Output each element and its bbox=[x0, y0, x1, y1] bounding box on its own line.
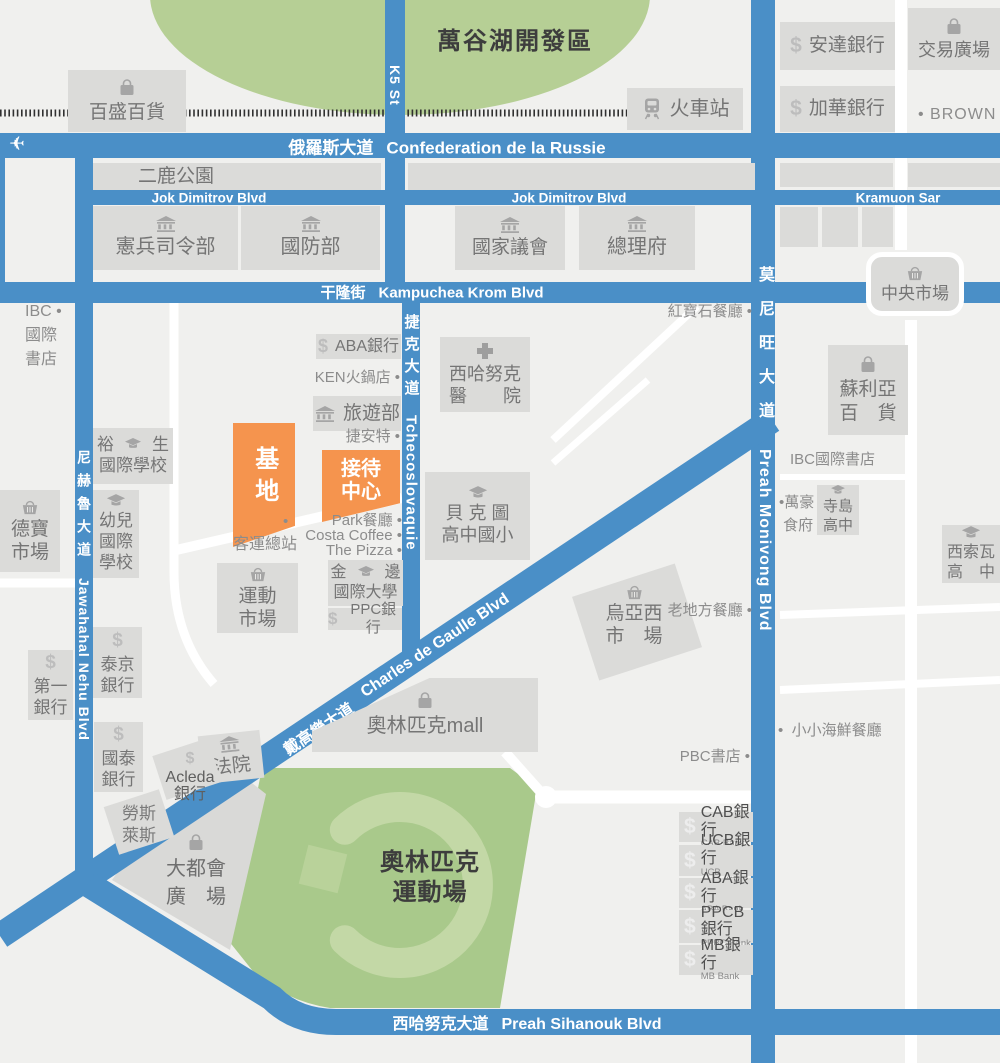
olympic-stadium-label-text: 奧林匹克 bbox=[380, 848, 480, 878]
area-labels-layer: 萬谷湖開發區奧林匹克運動場 bbox=[0, 0, 1000, 1063]
lake-dev-zone-label-text: 萬谷湖開發區 bbox=[437, 27, 593, 57]
olympic-stadium-label: 奧林匹克運動場 bbox=[380, 848, 480, 908]
lake-dev-zone-label: 萬谷湖開發區 bbox=[437, 27, 593, 57]
olympic-stadium-label-text: 運動場 bbox=[380, 878, 480, 908]
map-canvas: 俄羅斯大道Confederation de la RussieJok Dimit… bbox=[0, 0, 1000, 1063]
